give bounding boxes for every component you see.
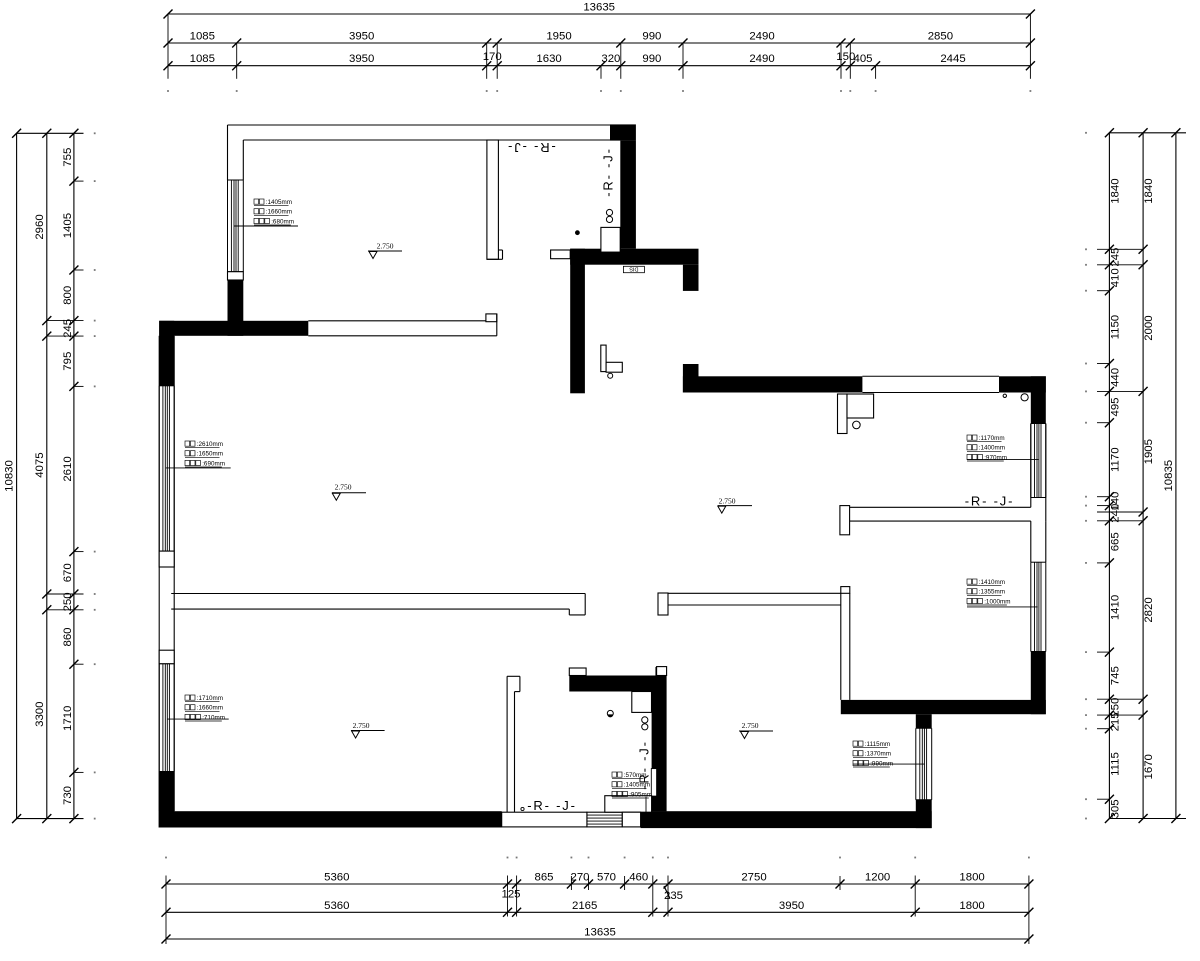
svg-text:3950: 3950	[349, 53, 374, 65]
svg-text:2490: 2490	[749, 53, 774, 65]
svg-text:1115: 1115	[1109, 752, 1121, 776]
svg-text:1950: 1950	[546, 31, 571, 43]
svg-text:495: 495	[1109, 397, 1121, 416]
svg-text:270: 270	[570, 872, 589, 884]
svg-text:2000: 2000	[1143, 315, 1155, 340]
svg-text:2750: 2750	[741, 872, 766, 884]
svg-text:-R- -J-: -R- -J-	[506, 140, 555, 155]
svg-text:-R- -J-: -R- -J-	[527, 798, 576, 813]
svg-text:245: 245	[62, 319, 74, 338]
svg-text::905mm: :905mm	[629, 791, 652, 798]
svg-text:990: 990	[642, 53, 661, 65]
svg-text:2.750: 2.750	[742, 721, 759, 730]
svg-text::690mm: :690mm	[202, 460, 225, 467]
svg-text::1000mm: :1000mm	[984, 598, 1010, 605]
svg-text:-R- -J-: -R- -J-	[637, 740, 652, 789]
svg-text:1840: 1840	[1109, 178, 1121, 203]
svg-text:1405: 1405	[62, 213, 74, 238]
svg-text:795: 795	[62, 352, 74, 371]
svg-text::680mm: :680mm	[271, 218, 294, 225]
svg-text:240: 240	[1109, 504, 1121, 523]
svg-text:1630: 1630	[536, 53, 561, 65]
svg-text:2445: 2445	[940, 53, 965, 65]
svg-text::1170mm: :1170mm	[979, 435, 1005, 442]
svg-text:5360: 5360	[324, 900, 349, 912]
svg-text:2.750: 2.750	[377, 242, 394, 251]
svg-text::1650mm: :1650mm	[197, 451, 223, 458]
svg-text:13635: 13635	[583, 2, 615, 14]
svg-text:1150: 1150	[1109, 315, 1121, 340]
svg-text:170: 170	[483, 51, 502, 63]
svg-text:460: 460	[629, 872, 648, 884]
svg-text:670: 670	[62, 563, 74, 582]
svg-text:-R- -J-: -R- -J-	[965, 494, 1014, 509]
svg-text:245: 245	[1109, 248, 1121, 267]
svg-text::1710mm: :1710mm	[197, 695, 223, 702]
svg-text::1405mm: :1405mm	[266, 199, 292, 206]
svg-text:1800: 1800	[959, 872, 984, 884]
svg-text:4075: 4075	[34, 452, 46, 477]
svg-text::1400mm: :1400mm	[979, 445, 1005, 452]
svg-text:860: 860	[62, 627, 74, 646]
svg-text:5360: 5360	[324, 872, 349, 884]
svg-text:1710: 1710	[62, 706, 74, 731]
svg-text:305: 305	[1109, 799, 1121, 818]
svg-text:2490: 2490	[749, 31, 774, 43]
svg-text:2.750: 2.750	[353, 721, 370, 730]
svg-text::1660mm: :1660mm	[197, 705, 223, 712]
svg-text::1115mm: :1115mm	[865, 741, 890, 748]
svg-text::1410mm: :1410mm	[979, 579, 1005, 586]
svg-text:1840: 1840	[1143, 178, 1155, 203]
svg-text:1670: 1670	[1143, 754, 1155, 779]
svg-text:2610: 2610	[62, 456, 74, 481]
svg-text:250: 250	[62, 592, 74, 611]
svg-text:1200: 1200	[865, 872, 890, 884]
svg-text:-R- -J-: -R- -J-	[601, 147, 616, 196]
svg-text:2960: 2960	[34, 214, 46, 239]
svg-text::1660mm: :1660mm	[266, 209, 292, 216]
svg-text:1085: 1085	[190, 53, 215, 65]
svg-text:13635: 13635	[584, 927, 616, 939]
svg-text:990: 990	[642, 31, 661, 43]
svg-text:570: 570	[597, 872, 616, 884]
svg-text:2820: 2820	[1143, 597, 1155, 622]
svg-text:755: 755	[62, 148, 74, 167]
svg-text:665: 665	[1109, 532, 1121, 551]
svg-text:10830: 10830	[4, 460, 16, 492]
svg-text:730: 730	[62, 786, 74, 805]
svg-text:2165: 2165	[572, 900, 597, 912]
svg-text:2850: 2850	[928, 31, 953, 43]
svg-text::1355mm: :1355mm	[979, 589, 1005, 596]
svg-text::970mm: :970mm	[984, 454, 1007, 461]
svg-text:1170: 1170	[1109, 447, 1121, 472]
svg-text:865: 865	[534, 872, 553, 884]
svg-text:2.750: 2.750	[719, 497, 736, 506]
svg-text:1085: 1085	[190, 31, 215, 43]
svg-text:2.750: 2.750	[335, 483, 352, 492]
svg-text:405: 405	[853, 53, 872, 65]
svg-text:10835: 10835	[1163, 460, 1175, 492]
svg-text:3300: 3300	[34, 702, 46, 727]
svg-text:800: 800	[62, 286, 74, 305]
svg-text:410: 410	[1109, 268, 1121, 287]
svg-text::710mm: :710mm	[202, 714, 225, 721]
svg-text:320: 320	[601, 53, 620, 65]
svg-text::2610mm: :2610mm	[197, 441, 223, 448]
svg-text:3950: 3950	[349, 31, 374, 43]
svg-text:125: 125	[501, 889, 520, 901]
svg-text:1410: 1410	[1109, 595, 1121, 620]
svg-text:745: 745	[1109, 666, 1121, 685]
svg-text:215: 215	[1109, 712, 1121, 731]
svg-text:DIS: DIS	[629, 266, 639, 272]
svg-text:3950: 3950	[779, 900, 804, 912]
svg-text:440: 440	[1109, 368, 1121, 387]
svg-text::1370mm: :1370mm	[865, 751, 891, 758]
svg-text:150: 150	[836, 51, 855, 63]
svg-text:1800: 1800	[959, 900, 984, 912]
svg-text:1905: 1905	[1143, 439, 1155, 464]
